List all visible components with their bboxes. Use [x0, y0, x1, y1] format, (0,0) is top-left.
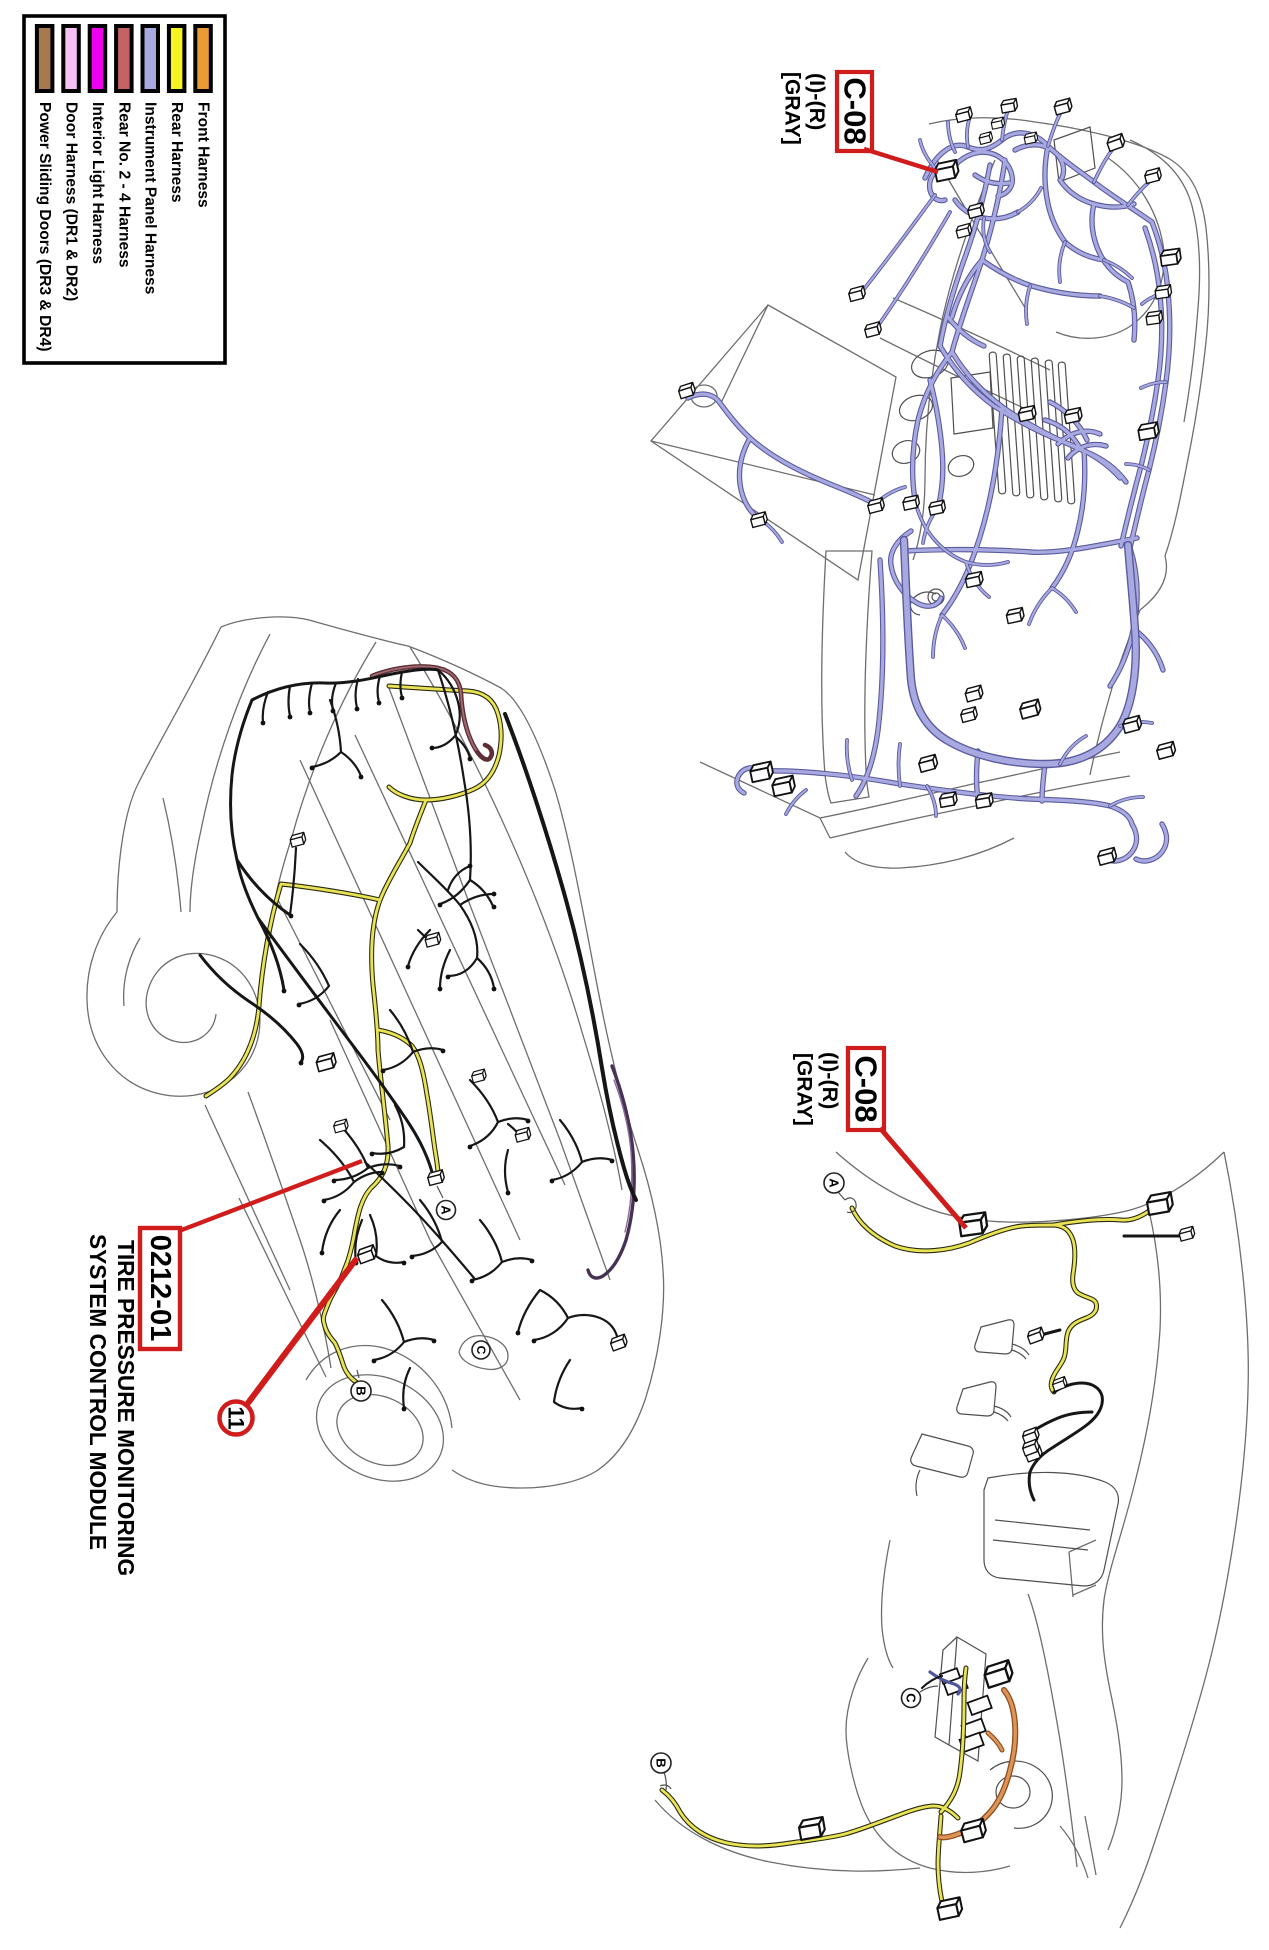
svg-text:11: 11	[224, 1406, 249, 1429]
svg-text:[GRAY]: [GRAY]	[781, 72, 804, 145]
svg-text:C: C	[474, 1346, 488, 1355]
svg-text:A: A	[439, 1205, 454, 1215]
svg-text:A: A	[827, 1178, 842, 1188]
svg-text:B: B	[654, 1758, 669, 1767]
svg-text:0212-01: 0212-01	[144, 1235, 176, 1341]
svg-text:B: B	[354, 1386, 369, 1395]
svg-text:TIRE PRESSURE MONITORING: TIRE PRESSURE MONITORING	[113, 1240, 139, 1576]
svg-text:C-08: C-08	[849, 1055, 884, 1122]
svg-text:Rear No. 2 - 4 Harness: Rear No. 2 - 4 Harness	[115, 102, 132, 268]
svg-text:Interior Light Harness: Interior Light Harness	[89, 102, 106, 264]
svg-text:[GRAY]: [GRAY]	[793, 1053, 816, 1126]
svg-text:Power Sliding Doors (DR3 & DR4: Power Sliding Doors (DR3 & DR4)	[36, 102, 53, 352]
svg-text:(I)-(R): (I)-(R)	[805, 73, 829, 130]
svg-text:Rear Harness: Rear Harness	[168, 102, 185, 203]
svg-text:Door Harness (DR1 & DR2): Door Harness (DR1 & DR2)	[63, 102, 80, 301]
svg-text:Front Harness: Front Harness	[195, 102, 212, 208]
svg-text:C: C	[904, 1693, 919, 1703]
svg-text:(I)-(R): (I)-(R)	[818, 1052, 842, 1109]
svg-text:C-08: C-08	[838, 77, 873, 144]
svg-text:Instrument Panel Harness: Instrument Panel Harness	[142, 102, 159, 295]
svg-text:SYSTEM CONTROL MODULE: SYSTEM CONTROL MODULE	[85, 1234, 111, 1550]
